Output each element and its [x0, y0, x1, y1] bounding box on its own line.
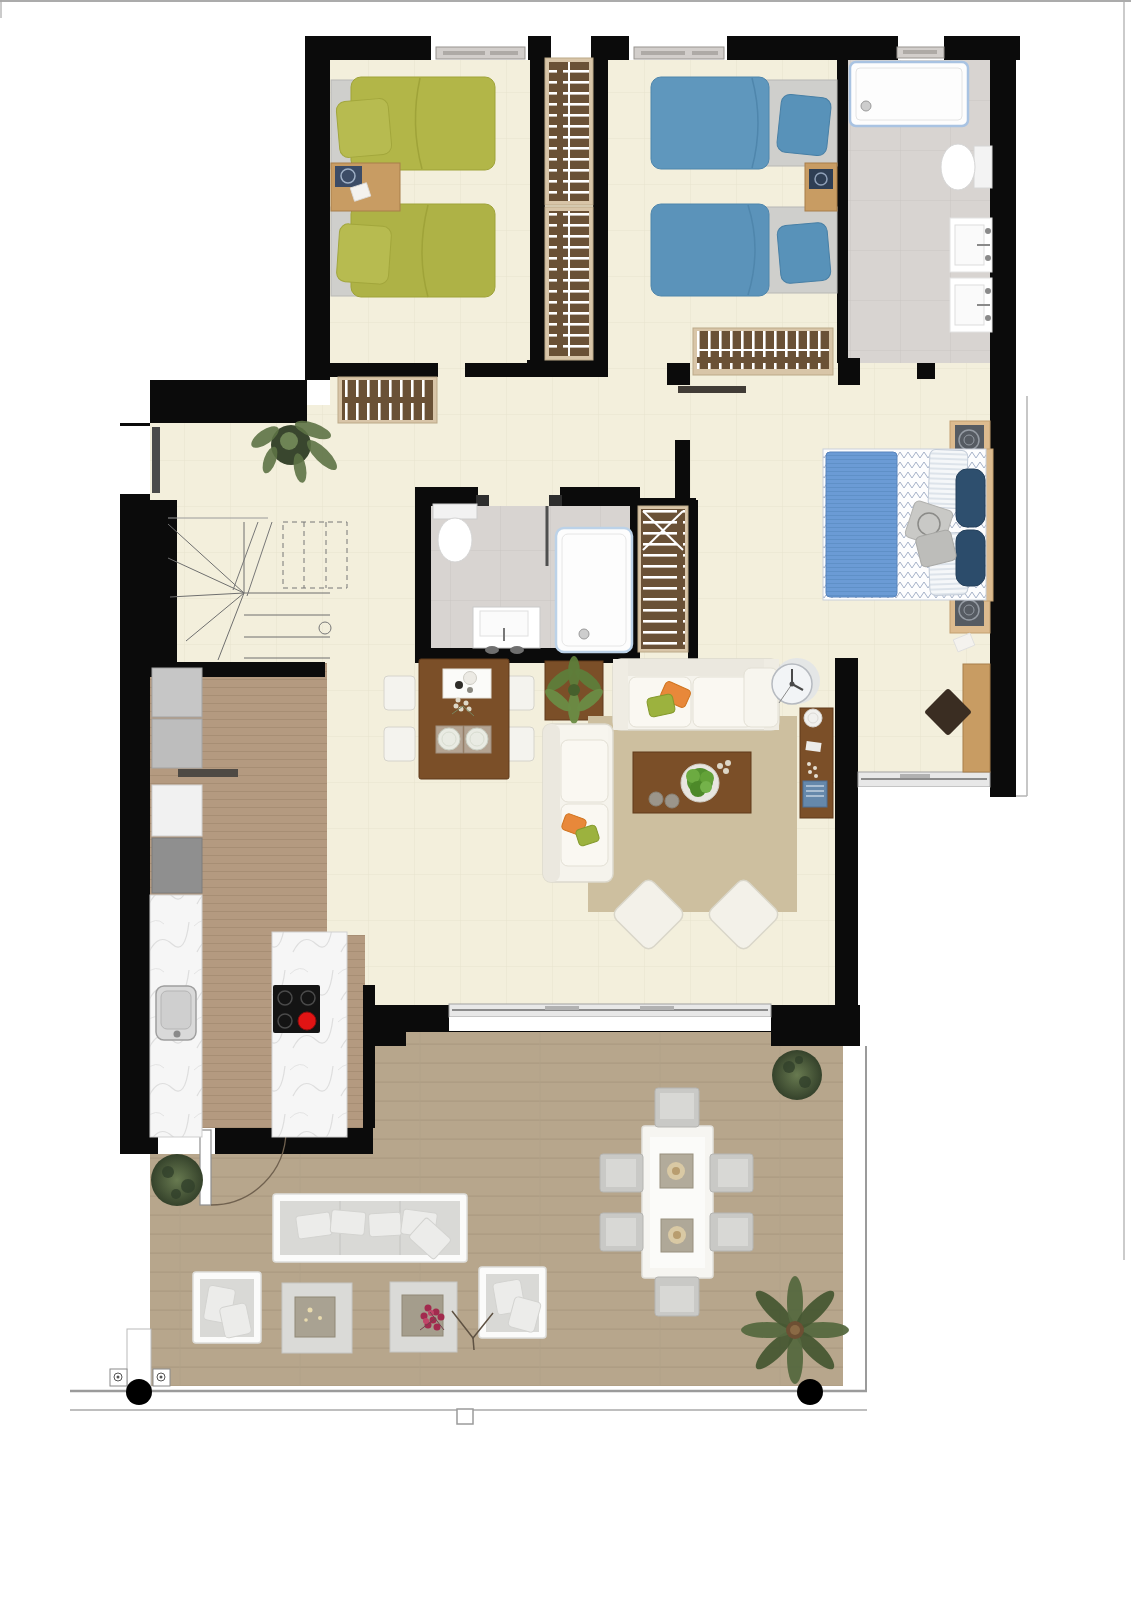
- dining-flowers-b: [464, 701, 469, 706]
- kitchen-appliance-3: [152, 785, 202, 836]
- dining-flowers-a: [456, 698, 461, 703]
- shower-mid-tray: [556, 528, 632, 652]
- wall-master-stub: [675, 440, 690, 502]
- lantern-1-core: [672, 1167, 680, 1175]
- doorjamb-bath2-b: [549, 495, 562, 506]
- sink-top-2-knob-b: [985, 315, 991, 321]
- master-window-handle: [900, 774, 930, 778]
- fern-frond-6: [568, 692, 580, 724]
- outdoor-armchair-left-p2: [219, 1303, 252, 1339]
- window-sill-2b: [692, 51, 718, 55]
- terrace-bush-right-d1: [783, 1061, 795, 1073]
- side-table-1-top: [295, 1297, 335, 1337]
- plate-2: [466, 728, 488, 750]
- wall-green-bottom-left: [305, 363, 438, 377]
- dining-bottle-1: [464, 672, 477, 685]
- lantern-2-core: [673, 1231, 681, 1239]
- window-sill-1a: [443, 51, 485, 55]
- wall-living-step-left: [364, 1005, 406, 1046]
- shower-tray-top: [850, 62, 968, 126]
- sink-top-1-knob-b: [985, 255, 991, 261]
- vanity-knob-r: [510, 646, 524, 654]
- branch-v-tail: [473, 1338, 474, 1350]
- terrace-bush-door-d3: [171, 1189, 181, 1199]
- sideboard-dot-2: [813, 766, 817, 770]
- dining-chair-2: [384, 727, 415, 761]
- wall-green-bottom-right: [465, 363, 530, 377]
- table-dot-3: [723, 768, 729, 774]
- wall-wardrobe-left: [530, 60, 545, 362]
- outdoor-chair-top-seat: [660, 1093, 694, 1119]
- outdoor-chair-right-2-seat: [718, 1218, 748, 1246]
- outdoor-chair-bottom-seat: [660, 1286, 694, 1312]
- table-dot-2: [725, 760, 731, 766]
- wall-under-wardrobe: [527, 360, 608, 377]
- anchor-dot-2: [160, 1376, 163, 1379]
- window-sill-3a: [903, 50, 937, 54]
- kitchen-sink-tap: [174, 1031, 181, 1038]
- plate-1: [438, 728, 460, 750]
- master-desk: [963, 664, 990, 772]
- entry-door-leaf: [152, 427, 160, 493]
- blue-bed1-pillow: [776, 94, 832, 157]
- outdoor-chair-left-1-seat: [606, 1159, 636, 1187]
- palm-center-top: [790, 1325, 800, 1335]
- hall-plant-top: [280, 432, 298, 450]
- sideboard-bowl: [804, 709, 822, 727]
- master-bolster-1: [956, 469, 985, 527]
- outdoor-sofa-pillow-1: [296, 1212, 333, 1240]
- flower-9: [423, 1318, 429, 1324]
- floor-terrace-top: [406, 1030, 771, 1046]
- wall-living-right: [835, 658, 858, 1043]
- wall-wardrobe-right: [593, 60, 608, 362]
- lettuce-5: [700, 781, 712, 793]
- kitchen-sink-basin: [161, 991, 191, 1029]
- toilet-top-bowl: [941, 144, 975, 190]
- wall-left-kitchen: [120, 663, 150, 1128]
- master-window-sill: [858, 787, 990, 797]
- flower-5: [438, 1314, 445, 1321]
- window-sill-2a: [641, 51, 685, 55]
- dining-chair-1: [384, 676, 415, 710]
- terrace-edge-right: [843, 1046, 866, 1390]
- kitchen-appliance-2: [152, 719, 202, 768]
- dining-bottle-3: [467, 687, 473, 693]
- fern-center: [568, 684, 580, 696]
- sliding-door-handle-1: [545, 1006, 579, 1010]
- dining-flowers-d: [467, 707, 472, 712]
- master-bolster-2: [956, 530, 985, 586]
- dining-bottle-2: [455, 681, 463, 689]
- terrace-bush-right-d3: [795, 1056, 803, 1064]
- wall-bath1-jamb-right: [917, 363, 935, 379]
- floor-plan-canvas: [0, 0, 1131, 1600]
- sideboard-dot-3: [808, 770, 812, 774]
- terrace-bush-door-d1: [162, 1166, 174, 1178]
- wall-blue-door-stub: [667, 363, 690, 385]
- blue-clock: [809, 169, 833, 189]
- side-table-1-sparkle-3: [304, 1318, 308, 1322]
- outdoor-chair-right-1-seat: [718, 1159, 748, 1187]
- plan-shapes: [0, 0, 1131, 1424]
- wall-wardrobe2-right: [688, 500, 698, 660]
- green-bed1-pillow: [336, 98, 393, 158]
- wall-hall-bottom: [120, 662, 325, 677]
- console-hall-slats: [342, 380, 433, 420]
- master-duvet: [826, 452, 897, 597]
- coaster-2: [665, 794, 679, 808]
- sideboard-dot-4: [814, 774, 818, 778]
- wall-left-top: [305, 60, 330, 380]
- green-bed2-pillow: [336, 223, 392, 284]
- sliding-door-handle-2: [640, 1006, 674, 1010]
- window-gap-shaft: [551, 36, 591, 60]
- outdoor-chair-left-2-seat: [606, 1218, 636, 1246]
- window-sill-1b: [490, 51, 518, 55]
- wall-living-step-right: [771, 1005, 860, 1046]
- sink-top-1-knob-a: [985, 228, 991, 234]
- fern-frond-5: [568, 656, 580, 688]
- anchor-dot-1: [117, 1376, 120, 1379]
- sofa-left-cushion-1: [561, 740, 608, 802]
- blue-bed1-duvet: [651, 77, 769, 169]
- vanity-knob-l: [485, 646, 499, 654]
- doorjamb-bath2-a: [476, 495, 489, 506]
- sofa-top-arm-left: [613, 659, 628, 730]
- toilet-mid-tank: [433, 504, 477, 519]
- blue-bed2-pillow: [777, 222, 832, 284]
- dining-flowers-e: [454, 704, 459, 709]
- hob-burner-red: [298, 1012, 316, 1030]
- floor-plan-page: [0, 0, 1131, 1600]
- blue-console: [678, 386, 746, 393]
- clock-center: [790, 682, 795, 687]
- shower-drain-top: [861, 101, 871, 111]
- sink-top-2-knob-a: [985, 288, 991, 294]
- kitchen-door-leaf: [200, 1130, 211, 1205]
- column-left: [126, 1379, 152, 1405]
- floor-terrace-mid: [373, 1046, 843, 1152]
- lettuce-2: [686, 769, 700, 783]
- wall-right: [990, 36, 1016, 797]
- kitchen-shelf-bar: [178, 769, 238, 777]
- outdoor-sofa-pillow-2: [330, 1210, 366, 1236]
- side-table-1-sparkle-2: [318, 1316, 322, 1320]
- wall-bath2-left: [415, 487, 431, 663]
- living-rug: [588, 716, 797, 912]
- terrace-bush-door-d2: [181, 1179, 195, 1193]
- kitchen-island: [272, 932, 347, 1137]
- coaster-1: [649, 792, 663, 806]
- kitchen-appliance-4: [152, 838, 202, 893]
- wall-bath1-left: [837, 36, 848, 363]
- outdoor-sofa-pillow-3: [368, 1212, 401, 1237]
- terrace-bush-right-d2: [799, 1076, 811, 1088]
- kitchen-appliance-1: [152, 668, 202, 717]
- toilet-mid-bowl: [438, 518, 472, 562]
- wall-bath2-top-right: [560, 487, 640, 506]
- sofa-left-back: [543, 724, 560, 882]
- toilet-top-tank: [974, 146, 992, 188]
- sliding-door-sill: [449, 1017, 771, 1031]
- wall-entry-step: [150, 380, 307, 423]
- wall-bath1-jamb-left: [838, 358, 860, 385]
- table-dot-1: [717, 763, 723, 769]
- column-right: [797, 1379, 823, 1405]
- shower-mid-drain: [579, 629, 589, 639]
- sideboard-dot-1: [807, 762, 811, 766]
- sideboard-books: [803, 781, 827, 807]
- entry-door-gap: [120, 426, 150, 494]
- side-table-1-sparkle-1: [308, 1308, 313, 1313]
- gate-marker: [457, 1409, 473, 1424]
